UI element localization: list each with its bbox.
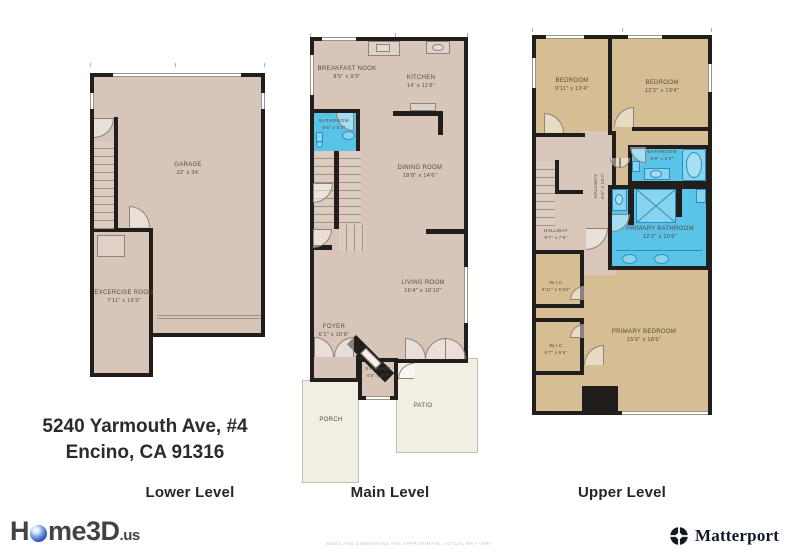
- window: [464, 267, 468, 323]
- room-dims: 6'6" x 5'2": [312, 125, 356, 131]
- room-name: KITCHEN: [382, 75, 460, 83]
- dimension-tick: [264, 63, 265, 67]
- window: [322, 37, 356, 41]
- room-dims: 8'9" x 5'2": [634, 156, 690, 162]
- dimension-tick: [532, 28, 533, 32]
- home3d-logo-text-rest: me3D: [48, 516, 120, 547]
- wall-segment: [555, 190, 583, 194]
- window-frame: [664, 35, 672, 39]
- room-label-hallway: HALLWAY 6'7" x 7'6": [530, 229, 582, 241]
- room-name: GARAGE: [133, 162, 243, 170]
- room-label-foyer: FOYER 6'1" x 16'6": [308, 324, 360, 339]
- matterport-wordmark: Matterport: [695, 526, 779, 546]
- dimension-tick: [175, 63, 176, 67]
- room-name: PRIMARY BEDROOM: [592, 329, 696, 337]
- room-name: PORCH: [304, 417, 358, 425]
- fixture-sink-basin: [432, 44, 444, 51]
- address-line-1: 5240 Yarmouth Ave, #4: [25, 414, 265, 440]
- wall-segment: [532, 371, 584, 375]
- room-label-dining-room: DINING ROOM 18'8" x 14'6": [370, 165, 470, 180]
- room-name: BEDROOM: [536, 78, 608, 86]
- room-label-patio: PATIO: [394, 403, 452, 411]
- stairs: [339, 151, 361, 225]
- solid-block: [582, 386, 618, 415]
- room-dims: 6'6" x 10'4": [600, 158, 606, 214]
- room-label-bathroom: BATHROOM 6'6" x 5'2": [312, 119, 356, 131]
- room-name: DINING ROOM: [370, 165, 470, 173]
- wall-segment: [632, 127, 712, 131]
- room-dims: 18'8" x 14'6": [370, 173, 470, 181]
- room-label-storage: STORAGE 4'8" x 4'7": [359, 367, 397, 379]
- floorplan-upper-level: BEDROOM 9'11" x 13'4" BEDROOM 12'2" x 13…: [528, 28, 718, 422]
- fixture-equipment: [97, 235, 125, 257]
- dimension-tick: [711, 28, 712, 32]
- window: [628, 35, 662, 39]
- garage-door-line: [157, 315, 261, 319]
- wall-segment: [532, 133, 585, 137]
- room-dims: 9'11" x 13'4": [536, 86, 608, 94]
- wall-segment: [532, 318, 584, 322]
- room-label-garage: GARAGE 22' x 34': [133, 162, 243, 177]
- fixture-sink-basin: [650, 170, 662, 178]
- room-label-primary-bathroom: PRIMARY BATHROOM 12'2" x 10'6": [610, 226, 710, 241]
- room-label-bedroom-2: BEDROOM 12'2" x 13'4": [620, 80, 704, 95]
- room-label-kitchen: KITCHEN 14' x 11'6": [382, 75, 460, 90]
- fixture-sink-basin: [342, 131, 355, 140]
- room-name: PATIO: [394, 403, 452, 411]
- fixture-counter: [410, 103, 436, 111]
- disclaimer-text: SIZES AND DIMENSIONS ARE APPROXIMATE, AC…: [326, 541, 493, 546]
- window: [366, 396, 390, 400]
- globe-icon: [30, 525, 47, 542]
- room-label-hallway-vertical: HALLWAY 6'6" x 10'4": [594, 158, 606, 214]
- room-dims: 6'7" x 7'6": [530, 235, 582, 241]
- matterport-logo: Matterport: [668, 525, 779, 547]
- matterport-pinwheel-icon: [668, 525, 690, 547]
- foyer-extension: [310, 355, 360, 382]
- fixture-toilet-bowl: [615, 194, 623, 205]
- fixture-sink-basin: [654, 254, 669, 264]
- wall-segment: [532, 304, 584, 308]
- room-label-bathroom: BATHROOM 8'9" x 5'2": [634, 150, 690, 162]
- room-dims: 22' x 34': [133, 170, 243, 178]
- wall-segment: [676, 185, 682, 217]
- home3d-logo-suffix: .us: [120, 527, 140, 544]
- room-label-exercise-room: EXCERCISE ROOM 7'11" x 19'3": [88, 290, 160, 305]
- room-label-living-room: LIVING ROOM 16'4" x 16'10": [373, 280, 473, 295]
- room-name: BREAKFAST NOOK: [308, 66, 386, 74]
- fixture-vanity-counter: [616, 250, 702, 251]
- dimension-tick: [90, 63, 91, 67]
- room-dims: 6'11" x 5'10": [532, 287, 580, 293]
- window: [622, 411, 708, 415]
- room-dims: 14' x 11'6": [382, 83, 460, 91]
- room-name: FOYER: [308, 324, 360, 332]
- room-label-bedroom-1: BEDROOM 9'11" x 13'4": [536, 78, 608, 93]
- window: [90, 93, 94, 109]
- room-dims: 15'6" x 18'6": [592, 337, 696, 345]
- room-label-primary-bedroom: PRIMARY BEDROOM 15'6" x 18'6": [592, 329, 696, 344]
- room-name: PRIMARY BATHROOM: [610, 226, 710, 234]
- floorplan-main-level: BREAKFAST NOOK 8'5" x 9'3" KITCHEN 14' x…: [306, 33, 472, 483]
- fixture-toilet: [632, 161, 640, 172]
- room-dims: 7'11" x 19'3": [88, 298, 160, 306]
- floorplan-lower-level: GARAGE 22' x 34' EXCERCISE ROOM 7'11" x …: [85, 63, 267, 377]
- stairs: [536, 162, 555, 228]
- room-dims: 12'2" x 10'6": [610, 234, 710, 242]
- wall-segment: [555, 160, 559, 194]
- room-dims: 6'7" x 5'6": [532, 350, 580, 356]
- room-label-wic-2: W.I.C 6'7" x 5'6": [532, 344, 580, 356]
- fixture-shower: [636, 189, 676, 223]
- wall-segment: [608, 35, 612, 135]
- porch-area: [302, 380, 359, 483]
- window: [708, 64, 712, 92]
- fixture-stove-inner: [376, 44, 390, 52]
- floorplan-page: GARAGE 22' x 34' EXCERCISE ROOM 7'11" x …: [0, 0, 793, 560]
- room-label-breakfast-nook: BREAKFAST NOOK 8'5" x 9'3": [308, 66, 386, 81]
- room-name: EXCERCISE ROOM: [88, 290, 160, 298]
- window: [113, 73, 241, 77]
- window: [261, 93, 265, 109]
- room-name: LIVING ROOM: [373, 280, 473, 288]
- room-dims: 6'1" x 16'6": [308, 332, 360, 340]
- dimension-tick: [622, 28, 623, 32]
- room-label-porch: PORCH: [304, 417, 358, 425]
- property-address: 5240 Yarmouth Ave, #4 Encino, CA 91316: [25, 414, 265, 466]
- window: [546, 35, 584, 39]
- room-dims: 16'4" x 16'10": [373, 288, 473, 296]
- room-dims: 12'2" x 13'4": [620, 88, 704, 96]
- address-line-2: Encino, CA 91316: [25, 440, 265, 466]
- wall-segment: [532, 250, 584, 254]
- room-dims: 8'5" x 9'3": [308, 74, 386, 82]
- fixture-toilet-bowl: [316, 141, 323, 148]
- wall-segment: [393, 111, 443, 116]
- window-frame: [586, 35, 594, 39]
- stairs-winder: [339, 225, 365, 251]
- fixture-sink-basin: [622, 254, 637, 264]
- fixture-toilet: [696, 189, 706, 203]
- level-label-upper: Upper Level: [552, 484, 692, 501]
- home3d-logo-text-h: H: [10, 516, 29, 547]
- room-dims: 4'8" x 4'7": [359, 373, 397, 379]
- wall-segment: [114, 117, 118, 229]
- stairs: [94, 141, 114, 229]
- room-label-wic-1: W.I.C 6'11" x 5'10": [532, 281, 580, 293]
- home3d-logo: Hme3D.us: [10, 516, 140, 547]
- level-label-main: Main Level: [320, 484, 460, 501]
- wall-segment: [426, 229, 468, 234]
- level-label-lower: Lower Level: [120, 484, 260, 501]
- room-name: BEDROOM: [620, 80, 704, 88]
- wall-segment: [438, 111, 443, 135]
